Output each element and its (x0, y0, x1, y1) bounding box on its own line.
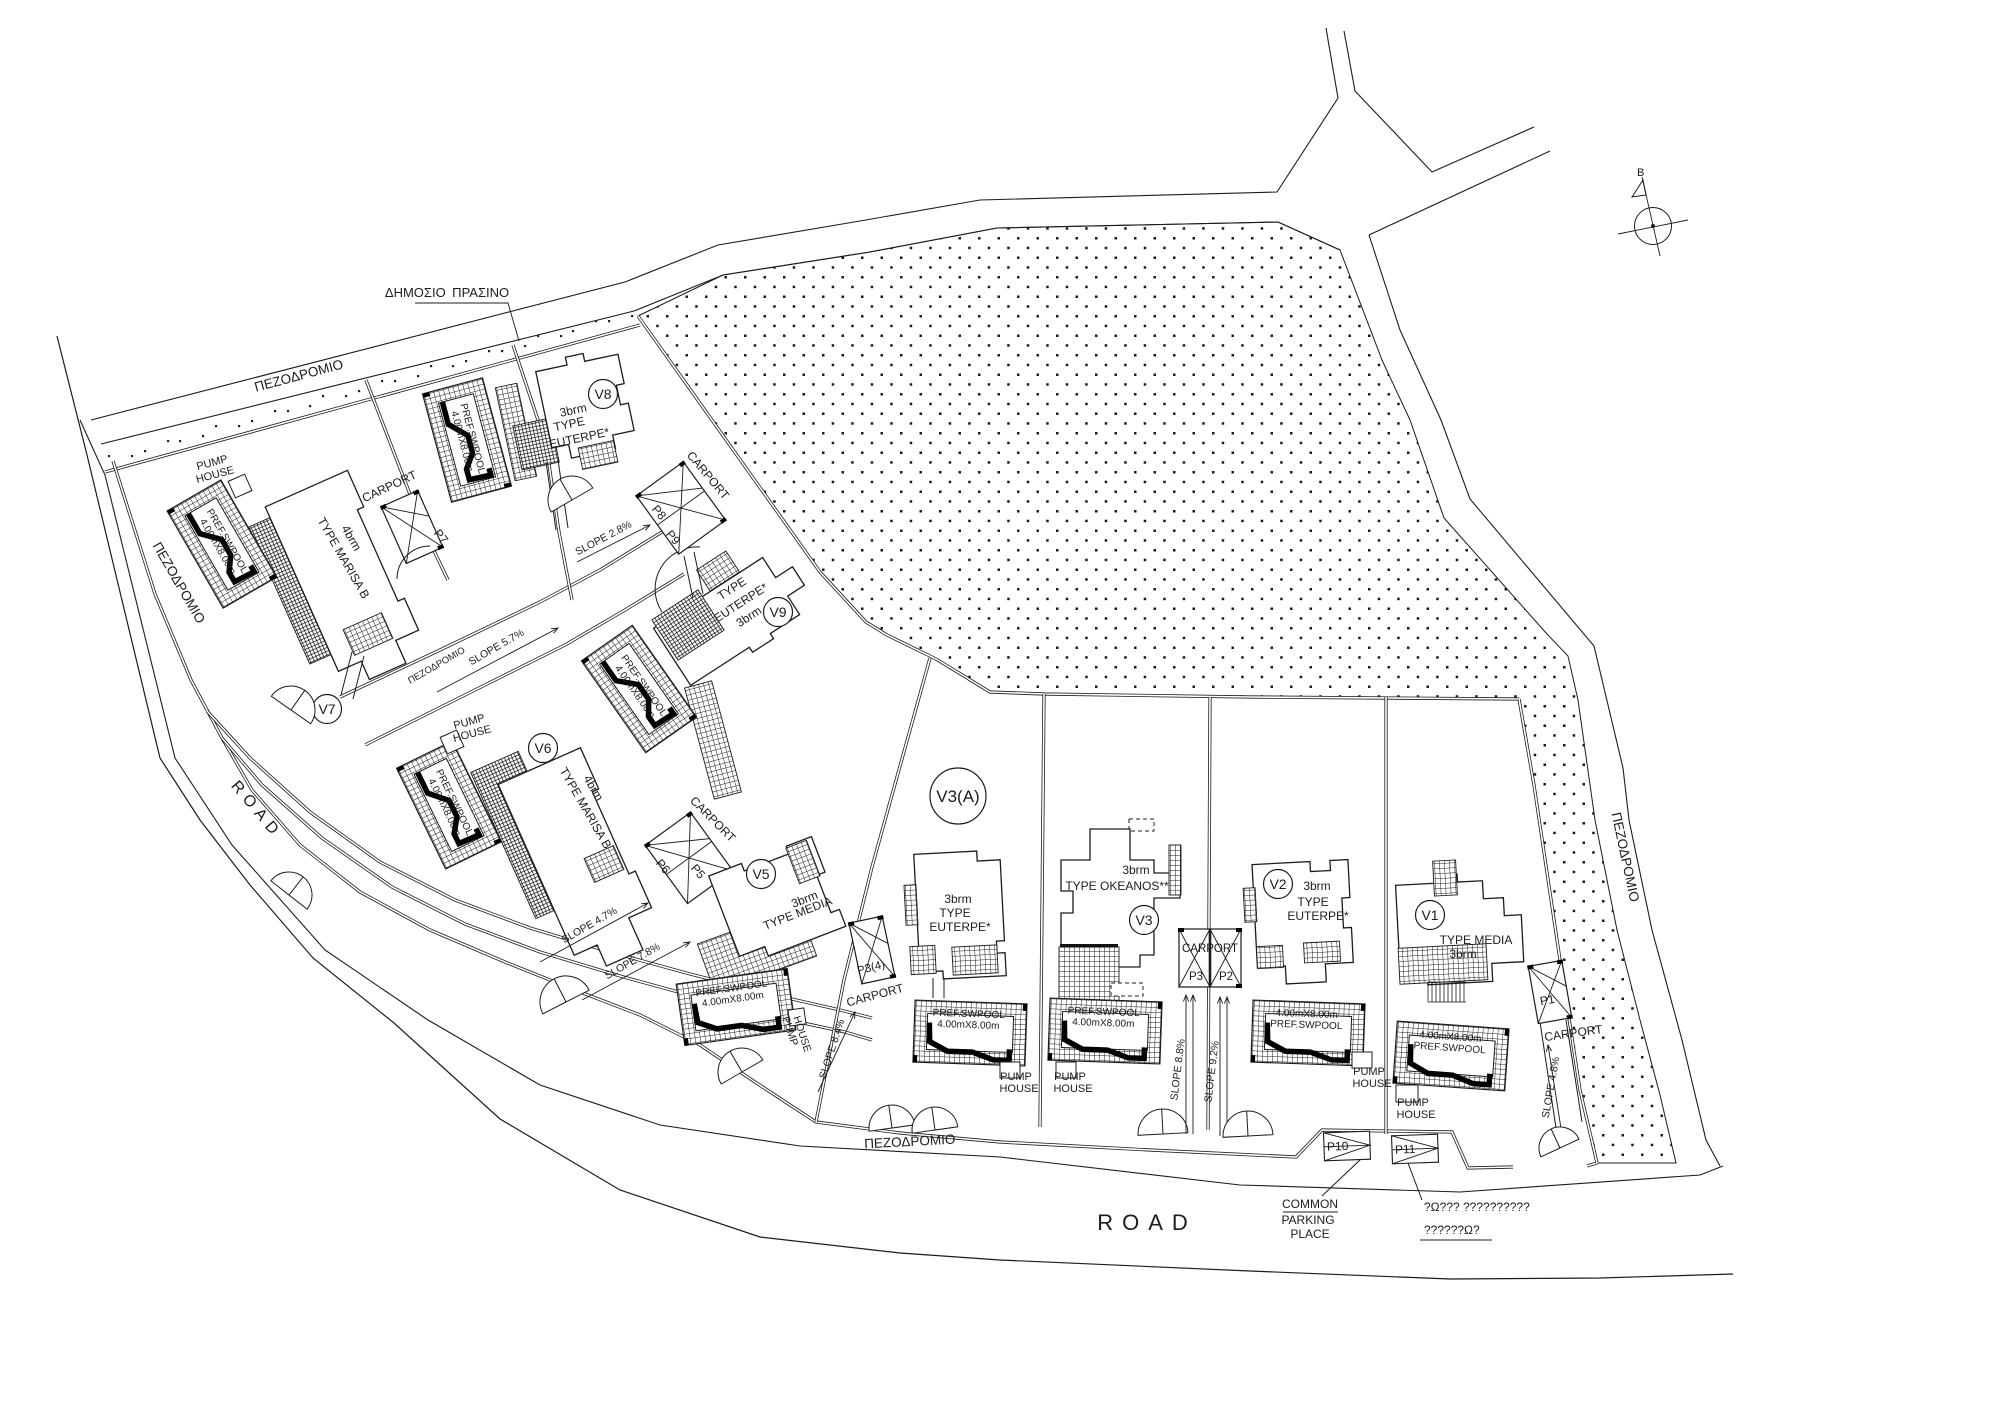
svg-text:P11: P11 (1395, 1142, 1416, 1157)
svg-text:CARPORT: CARPORT (1182, 943, 1238, 955)
svg-text:PUMP: PUMP (1353, 1066, 1385, 1078)
svg-text:V7: V7 (318, 701, 335, 717)
svg-text:PARKING: PARKING (1281, 1213, 1334, 1227)
svg-text:V3(A): V3(A) (936, 787, 979, 806)
svg-text:V3: V3 (1135, 912, 1152, 928)
svg-text:3brm: 3brm (944, 892, 971, 906)
svg-text:B: B (1637, 167, 1644, 179)
svg-text:P1: P1 (1539, 992, 1556, 1008)
svg-text:3brm: 3brm (1303, 879, 1330, 893)
svg-text:TYPE: TYPE (1297, 895, 1328, 909)
svg-text:TYPE MEDIA: TYPE MEDIA (1440, 933, 1513, 947)
svg-text:PUMP: PUMP (1054, 1071, 1086, 1083)
svg-text:ΔΗΜΟΣΙΟ ΠΡΑΣΙΝΟ: ΔΗΜΟΣΙΟ ΠΡΑΣΙΝΟ (385, 285, 509, 300)
svg-text:?Ω??? ??????????: ?Ω??? ?????????? (1424, 1200, 1530, 1214)
svg-text:3brm: 3brm (1122, 863, 1149, 877)
svg-text:P3: P3 (1189, 971, 1203, 983)
svg-text:V9: V9 (769, 604, 786, 620)
svg-text:HOUSE: HOUSE (999, 1083, 1038, 1095)
svg-text:3brm: 3brm (1449, 947, 1476, 961)
svg-text:P2: P2 (1219, 971, 1233, 983)
svg-text:V8: V8 (594, 386, 611, 402)
svg-text:TYPE OKEANOS**: TYPE OKEANOS** (1065, 879, 1169, 893)
svg-text:??????Ω?: ??????Ω? (1424, 1223, 1480, 1237)
svg-text:TYPE: TYPE (939, 906, 970, 920)
svg-text:PLACE: PLACE (1290, 1227, 1329, 1241)
svg-text:4.00mX8.00m: 4.00mX8.00m (937, 1019, 1000, 1032)
svg-text:EUTERPE*: EUTERPE* (929, 920, 991, 934)
svg-text:COMMON: COMMON (1282, 1197, 1338, 1211)
svg-text:P10: P10 (1327, 1139, 1349, 1154)
svg-text:V2: V2 (1269, 876, 1286, 892)
svg-text:HOUSE: HOUSE (1352, 1078, 1391, 1090)
svg-text:ROAD: ROAD (1097, 1210, 1197, 1235)
svg-text:PUMP: PUMP (1000, 1071, 1032, 1083)
svg-text:HOUSE: HOUSE (1053, 1083, 1092, 1095)
svg-text:V6: V6 (534, 740, 551, 756)
svg-text:PUMP: PUMP (1397, 1097, 1429, 1109)
svg-text:HOUSE: HOUSE (1396, 1109, 1435, 1121)
svg-text:EUTERPE*: EUTERPE* (1287, 909, 1349, 923)
svg-text:V5: V5 (752, 866, 769, 882)
svg-text:V1: V1 (1421, 907, 1438, 923)
svg-text:4.00mX8.00m: 4.00mX8.00m (1072, 1017, 1135, 1030)
